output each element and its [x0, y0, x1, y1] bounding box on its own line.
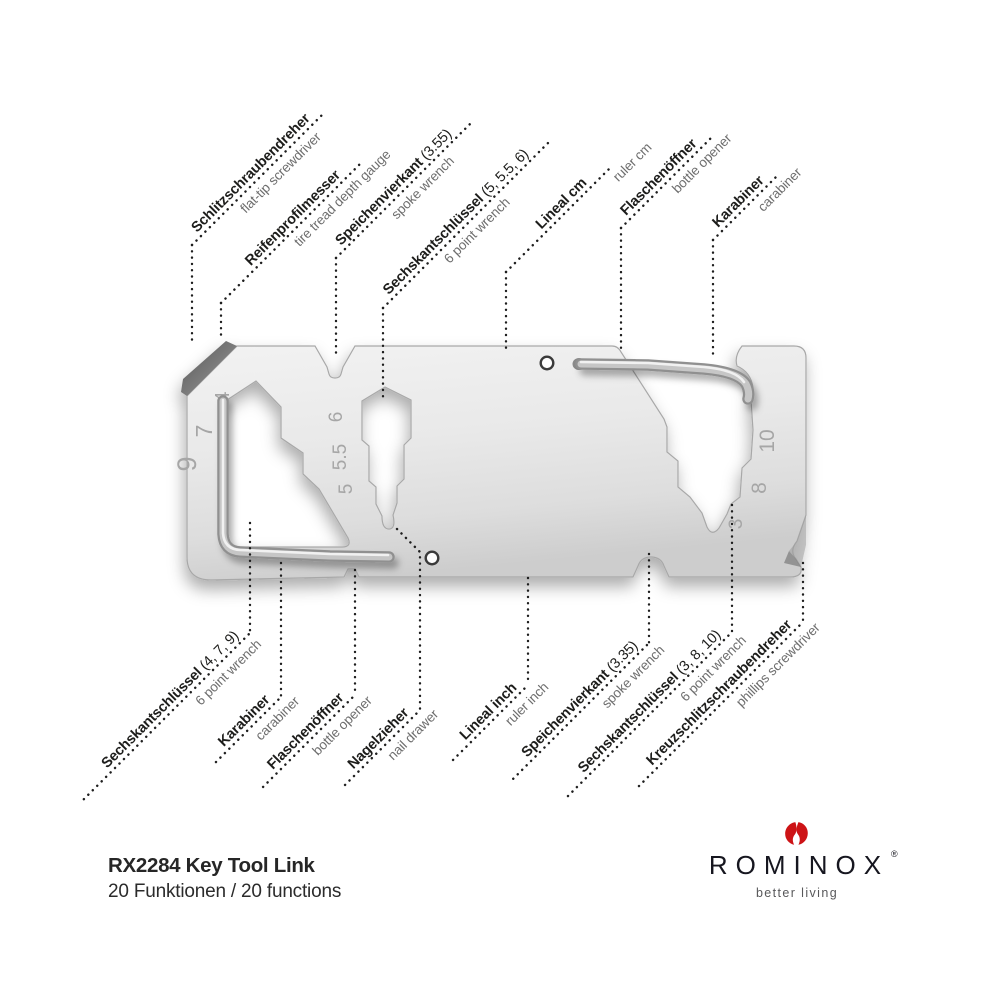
engraving-mid-5-5: 5.5: [330, 444, 351, 470]
brand-wordmark: ROMINOX: [709, 850, 889, 880]
brand-tagline: better living: [756, 886, 838, 900]
engraving-left-9: 9: [172, 456, 202, 471]
brand-registered-mark: ®: [891, 849, 898, 859]
engraving-mid-5: 5: [336, 484, 357, 495]
engraving-right-10: 10: [756, 429, 779, 452]
engraving-left-7: 7: [191, 425, 217, 438]
engraving-right-8: 8: [748, 482, 771, 494]
diagram-canvas: 4 7 9 6 5.5 5 10 8 3 Schlitzschraubendre…: [0, 0, 1000, 1000]
engraving-mid-6: 6: [326, 412, 347, 423]
product-model: RX2284 Key Tool Link: [108, 854, 316, 877]
product-diagram: 4 7 9 6 5.5 5 10 8 3 Schlitzschraubendre…: [0, 0, 1000, 1000]
engraving-right-3: 3: [726, 519, 747, 530]
product-functions: 20 Funktionen / 20 functions: [108, 881, 341, 902]
key-hole-top: [541, 357, 554, 370]
key-hole-bottom: [426, 552, 439, 565]
